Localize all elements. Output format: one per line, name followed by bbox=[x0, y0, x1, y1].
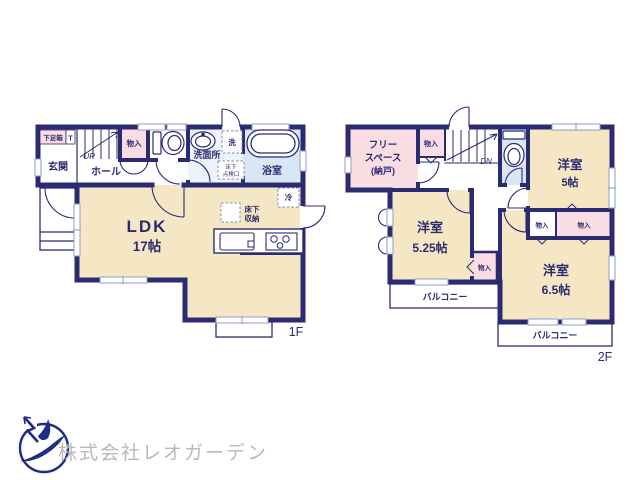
room-label-bathroom: 浴室 bbox=[262, 164, 282, 177]
kitchen-counter-icon bbox=[214, 229, 303, 253]
floor1-plan: 下足箱 T 玄関 UP ホール 物入 洗面所 洗 床下 点検口 浴室 LDK 1… bbox=[35, 109, 325, 339]
floor-plan-svg: 下足箱 T 玄関 UP ホール 物入 洗面所 洗 床下 点検口 浴室 LDK 1… bbox=[0, 0, 640, 480]
underfloor-hatch-line2: 点検口 bbox=[223, 170, 240, 178]
room-size-ldk: 17帖 bbox=[133, 238, 162, 254]
shoe-box-t-label: T bbox=[68, 136, 73, 143]
stove-icon bbox=[266, 233, 297, 250]
closet-label-top: 物入 bbox=[424, 139, 438, 148]
closet-label-bottom: 物入 bbox=[478, 263, 492, 272]
room-label-washroom: 洗面所 bbox=[193, 149, 220, 160]
company-name: 株式会社レオガーデン bbox=[58, 442, 268, 464]
floor-plan-image: 下足箱 T 玄関 UP ホール 物入 洗面所 洗 床下 点検口 浴室 LDK 1… bbox=[0, 0, 640, 480]
free-space-line2: スペース bbox=[365, 153, 402, 164]
underfloor-storage-box bbox=[221, 203, 240, 222]
underfloor-hatch-line1: 床下 bbox=[225, 163, 237, 171]
bathtub-icon bbox=[247, 130, 299, 157]
free-space-line1: フリー bbox=[369, 140, 398, 151]
washer-label: 洗 bbox=[228, 137, 236, 147]
closet-label-pink: 物入 bbox=[578, 221, 592, 230]
room-label-hall: ホール bbox=[91, 166, 121, 178]
free-space-line3: (納戸) bbox=[371, 165, 395, 176]
balcony-label-bottom: バルコニー bbox=[533, 331, 578, 341]
sink-icon bbox=[191, 132, 215, 150]
room-label-entrance: 玄関 bbox=[48, 160, 68, 173]
faucet-icon bbox=[248, 241, 254, 247]
floor2-plan: フリー スペース (納戸) 物入 DN 洋室 5帖 物入 物入 洋室 5.25帖… bbox=[345, 107, 616, 364]
company-logo: 株式会社レオガーデン bbox=[20, 417, 268, 472]
toilet-icon-2f bbox=[503, 131, 525, 167]
floor1-label: 1F bbox=[289, 325, 304, 339]
room-size-65: 6.5帖 bbox=[542, 282, 571, 297]
underfloor-storage-line1: 床下 bbox=[245, 204, 260, 214]
room-label-525: 洋室 bbox=[417, 220, 443, 235]
room-size-525: 5.25帖 bbox=[412, 240, 447, 255]
room-label-ldk: LDK bbox=[127, 217, 168, 236]
balcony-label-left: バルコニー bbox=[423, 292, 468, 302]
room-label-65: 洋室 bbox=[543, 263, 569, 278]
closet-label-1f: 物入 bbox=[127, 138, 142, 148]
room-label-5: 洋室 bbox=[557, 157, 583, 172]
stairs-down-label: DN bbox=[480, 157, 492, 166]
closet-label-white: 物入 bbox=[536, 221, 550, 230]
shoe-box-label: 下足箱 bbox=[43, 133, 63, 142]
toilet-icon bbox=[153, 132, 184, 155]
room-size-5: 5帖 bbox=[561, 175, 578, 189]
fridge-label: 冷 bbox=[285, 192, 293, 202]
floor2-label: 2F bbox=[598, 350, 613, 364]
stairs-up-label: UP bbox=[83, 151, 95, 161]
underfloor-storage-line2: 収納 bbox=[245, 213, 260, 223]
